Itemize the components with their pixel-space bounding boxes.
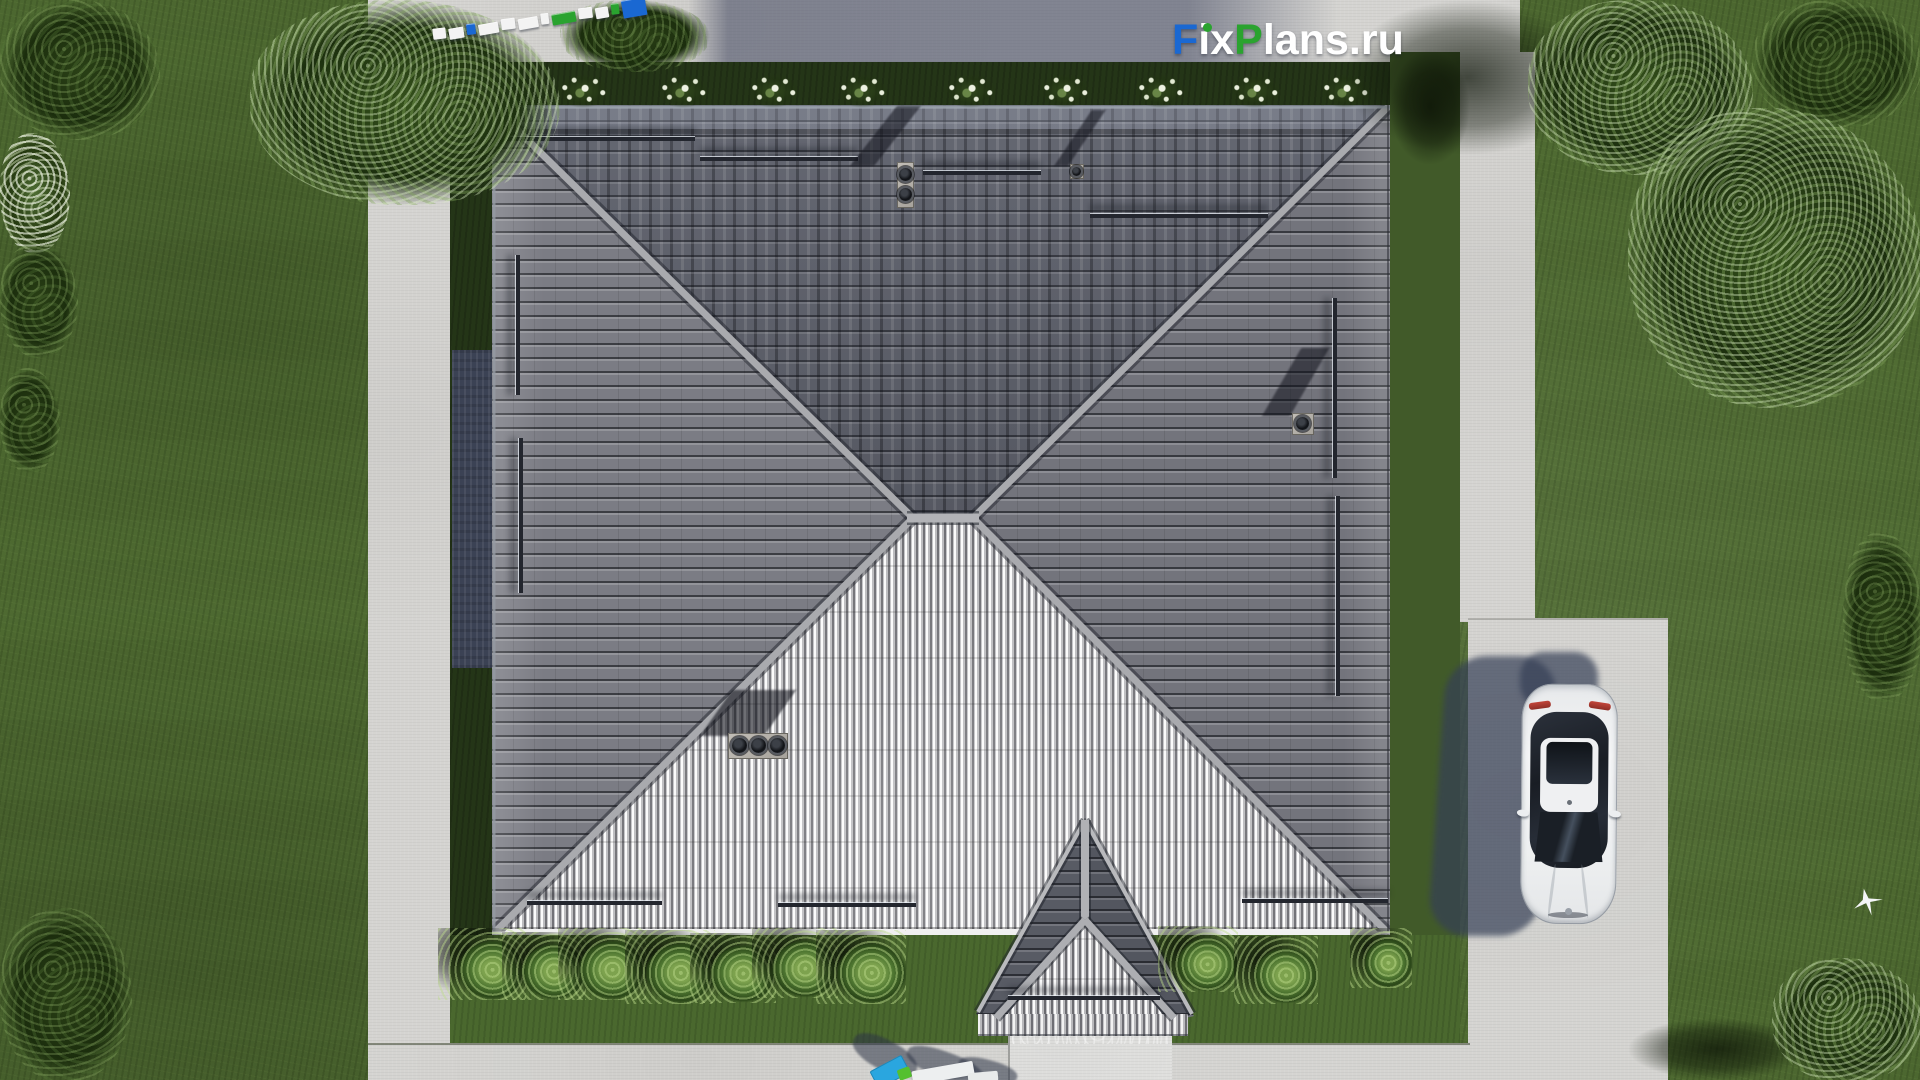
scale-bar-segment [517, 15, 539, 29]
flower-bush [944, 74, 996, 108]
car-mirror-left [1517, 810, 1529, 817]
scale-bar-segment [501, 17, 516, 30]
tree [0, 908, 132, 1080]
snow-guard-rail [700, 157, 858, 161]
vent-pipe-icon [1072, 167, 1081, 176]
chimney-pipe-icon [899, 168, 912, 181]
west-wall-shadow [452, 350, 492, 668]
car-antenna [1567, 800, 1572, 805]
chimney-pipe-icon [899, 188, 912, 201]
snow-guard-rail [1242, 899, 1388, 903]
roof-ridge-lines [492, 105, 1390, 935]
aerial-house-render: FixPlans.ru [0, 0, 1920, 1080]
tree [1843, 532, 1920, 702]
tree [1772, 958, 1920, 1080]
chimney [897, 162, 914, 208]
roof-vent-triple [728, 733, 788, 759]
flower-bush [1229, 74, 1281, 108]
tree [1628, 108, 1920, 408]
snow-guard-rail [1008, 996, 1160, 1000]
tree [0, 133, 70, 253]
logo-part-lans: lans [1263, 16, 1349, 64]
flower-bush [836, 74, 888, 108]
bush [1350, 928, 1412, 988]
bird-icon [1850, 885, 1886, 920]
snow-guard-rail [1333, 298, 1337, 478]
fixplans-watermark: FixPlans.ru [1172, 16, 1404, 65]
scale-bar-segment [448, 26, 465, 39]
snow-guard-rail [1336, 496, 1340, 696]
bush [816, 930, 906, 1004]
snow-guard-rail [1090, 214, 1268, 218]
flower-bush [557, 74, 609, 108]
flower-bush [657, 74, 709, 108]
tree [0, 368, 60, 473]
house-roof [492, 105, 1390, 935]
roof-vent-right [1292, 413, 1314, 435]
flower-bush [1039, 74, 1091, 108]
vent-pipe-icon [770, 738, 785, 753]
tree [0, 243, 78, 358]
snow-guard-rail [519, 438, 523, 593]
car-mirror-right [1609, 810, 1621, 817]
car-sunroof [1546, 742, 1592, 784]
scale-bar-segment [466, 23, 476, 35]
car-badge-icon [1565, 908, 1572, 915]
scale-bar-segment [540, 12, 549, 24]
vent-pipe-icon [732, 738, 747, 753]
tree-shadow [1390, 50, 1470, 165]
tree [0, 0, 160, 140]
scale-bar-segment [478, 21, 500, 35]
white-object [968, 1071, 999, 1080]
snow-guard-rail [778, 903, 916, 907]
flower-bush [747, 74, 799, 108]
scale-bar-segment [551, 10, 577, 25]
logo-part-p: P [1234, 16, 1263, 64]
logo-part-f: F [1172, 16, 1198, 64]
snow-guard-rail [527, 901, 662, 905]
white-car [1520, 684, 1618, 925]
bush [1158, 926, 1238, 992]
bush [1234, 936, 1318, 1004]
logo-green-dot-icon [1203, 23, 1212, 32]
vent-pipe-icon [1296, 417, 1309, 430]
roof-vent-small [1070, 164, 1084, 179]
flower-bush [1134, 74, 1186, 108]
snow-guard-rail [516, 255, 520, 395]
scale-bar-segment [595, 6, 610, 19]
car-windshield [1534, 812, 1602, 863]
logo-part-ru: .ru [1349, 16, 1404, 64]
snow-guard-rail [923, 171, 1041, 175]
scale-bar-segment [578, 6, 593, 19]
vent-pipe-icon [751, 738, 766, 753]
scale-bar-segment [610, 2, 619, 14]
scale-bar-segment [432, 27, 446, 40]
